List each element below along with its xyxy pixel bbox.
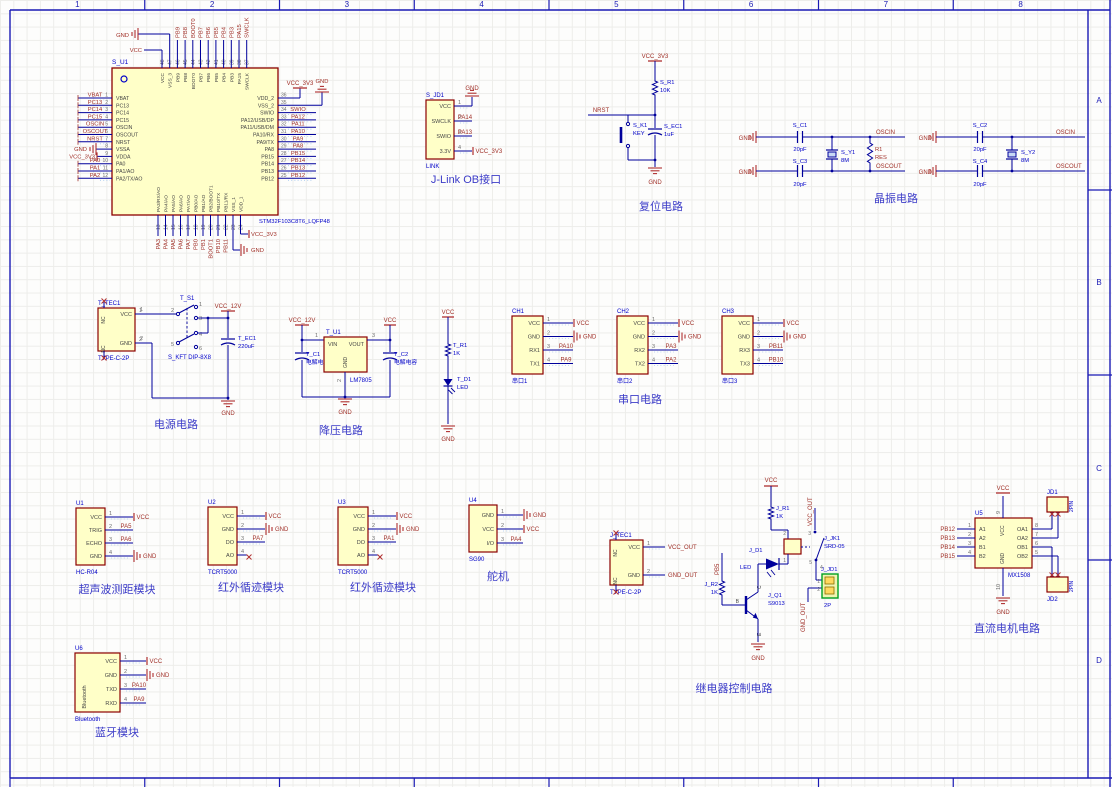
net-label-BOOT0: BOOT0 — [191, 18, 197, 38]
pin-number: 47 — [168, 59, 174, 65]
circuit-power-led[interactable]: VCCT_R11KT_D1LEDGND — [441, 310, 471, 443]
pin-name: PB14 — [261, 162, 274, 168]
pin-name: GND — [628, 573, 640, 579]
pin-name: VCC — [90, 515, 102, 521]
pin-name: GND — [90, 554, 102, 560]
gnd-port: GND — [919, 170, 933, 176]
gnd-port: GND — [583, 335, 597, 341]
part-name: STM32F103C8T6_LQFP48 — [259, 219, 330, 225]
pin-number: 4 — [372, 549, 375, 555]
crystal-symbol — [828, 152, 836, 157]
pin-name: PA10/RX — [253, 133, 274, 139]
gnd-port: GND — [465, 86, 479, 92]
cap-plate — [221, 343, 235, 345]
pin-name: TX3 — [740, 362, 750, 368]
pin-name: TX1 — [530, 362, 540, 368]
pin-name: GND — [343, 357, 349, 369]
pin-name: PB4 — [222, 73, 228, 82]
net-label-PA3: PA3 — [666, 344, 678, 350]
pin-name: TXD — [106, 687, 117, 693]
designator: R1 — [875, 147, 882, 153]
component-CH1[interactable]: CH1串口1VCC1VCCGND2GNDRX13PA10TX14PA9 — [512, 309, 597, 385]
pin-name: VBAT — [116, 96, 130, 102]
pin-name: ECHO — [86, 541, 103, 547]
designator: JD2 — [1047, 597, 1058, 603]
pin-number: 4 — [652, 358, 655, 364]
section-title-servo[interactable]: 舵机 — [487, 569, 509, 583]
pin-number: 1 — [458, 100, 461, 106]
pin-name: AO — [357, 553, 366, 559]
pin-name: PA5/AO — [171, 195, 177, 212]
pin-name: GND — [353, 527, 365, 533]
pin-name: TRIG — [89, 528, 102, 534]
value: 20pF — [793, 147, 807, 153]
net-label-OSCIN: OSCIN — [876, 130, 895, 136]
net-label-PA4: PA4 — [511, 537, 523, 543]
pin-number: 15 — [171, 224, 177, 230]
pin-number: 1 — [968, 523, 971, 529]
pin-number: 3 — [372, 536, 375, 542]
power-port-VCC: VCC — [137, 515, 150, 521]
net-label-PA5: PA5 — [171, 239, 177, 250]
connector-body — [1047, 577, 1068, 592]
pin-name: PA12/USB/DP — [241, 118, 275, 124]
zone-letter-B: B — [1096, 278, 1101, 287]
pin-name: RX3 — [739, 348, 750, 354]
designator: S_C4 — [973, 159, 988, 165]
pin-number: 14 — [164, 224, 170, 230]
gnd-port: GND — [74, 147, 87, 153]
net-label-PC13: PC13 — [88, 100, 103, 106]
pin-number: 2 — [372, 523, 375, 529]
net-label-PB5: PB5 — [214, 27, 220, 38]
designator: T_C1 — [306, 352, 320, 358]
part-name: Bluetooth — [75, 717, 100, 723]
pin-name: RX2 — [634, 348, 645, 354]
net-label-PA1: PA1 — [384, 536, 396, 542]
pin-number: 1 — [817, 579, 820, 585]
pin-name: PB11/RX — [224, 192, 230, 212]
gnd-port: GND — [648, 180, 662, 186]
net-label-PA6: PA6 — [179, 239, 185, 250]
designator: U6 — [75, 646, 83, 652]
pin-number: 22 — [224, 224, 230, 230]
net-label-SWCLK: SWCLK — [245, 17, 251, 38]
pin-number: 2 — [652, 331, 655, 337]
pin-number: 6 — [1035, 541, 1038, 547]
pin-number: 4 — [124, 697, 127, 703]
section-title-reset[interactable]: 复位电路 — [639, 199, 683, 213]
pin-number: 45 — [183, 59, 189, 65]
pin-number: 2 — [241, 523, 244, 529]
pin-number: 3 — [109, 537, 112, 543]
pin-name: PA4/AO — [164, 195, 170, 212]
power-port: VCC_3V3 — [642, 54, 669, 60]
net-label-PB14: PB14 — [291, 158, 306, 164]
pin-name: B1 — [979, 545, 986, 551]
component-U3[interactable]: U3TCRT5000VCC1VCCGND2GNDDO3PA1AO4 — [338, 500, 420, 576]
zone-letter-D: D — [1096, 656, 1102, 665]
section-title-buck[interactable]: 降压电路 — [319, 423, 363, 437]
net-label-BOOT1: BOOT1 — [209, 239, 215, 259]
net-label-PA10: PA10 — [132, 683, 147, 689]
designator: CH3 — [722, 309, 735, 315]
pin-name: VDDA — [116, 154, 131, 160]
pin-number: 5 — [1035, 550, 1038, 556]
net-label-NRST: NRST — [87, 136, 103, 142]
pin-name: PA8 — [265, 147, 275, 153]
value: 1K — [453, 351, 460, 357]
pin-number: 17 — [186, 224, 192, 230]
pin-name: PC13 — [116, 103, 129, 109]
pin-number: 3 — [968, 541, 971, 547]
junction-dot — [344, 396, 347, 399]
circuit-power[interactable]: 12T_S1S_KFT DIP-8X8123456VCC_12VT_EC1220… — [135, 296, 256, 417]
pin-number: 40 — [222, 59, 228, 65]
power-port-VCC: VCC — [577, 321, 590, 327]
pin-name: PB10/TX — [216, 192, 222, 212]
cap-plate — [648, 133, 662, 135]
designator: T_R1 — [453, 343, 467, 349]
value: LED — [740, 565, 751, 571]
net-label-PA1: PA1 — [90, 166, 101, 172]
component-mcu-S_U1[interactable]: S_U1STM32F103C8T6_LQFP48VBAT1VBATPC132PC… — [69, 17, 330, 258]
pin-number: 44 — [191, 59, 197, 65]
net-label-PA12: PA12 — [291, 114, 305, 120]
designator: T_EC1 — [238, 336, 256, 342]
pin-name: GND — [482, 513, 494, 519]
value: 8M — [841, 158, 849, 164]
value: 20pF — [973, 182, 987, 188]
designator: S_Y1 — [841, 150, 855, 156]
pin-number: 43 — [199, 59, 205, 65]
schematic-canvas[interactable]: 12345678ABCDJ-Link OB接口复位电路晶振电路电源电路降压电路串… — [0, 0, 1112, 787]
section-title-relay[interactable]: 继电器控制电路 — [696, 681, 773, 695]
value: LED — [457, 385, 468, 391]
net-label-VCC_OUT: VCC_OUT — [668, 545, 697, 551]
pin-number: 4 — [757, 358, 760, 364]
resistor-symbol — [652, 78, 657, 98]
gnd-port: GND — [688, 335, 702, 341]
pin-name: PB1/AO — [201, 194, 207, 212]
designator: U3 — [338, 500, 346, 506]
wire — [816, 538, 824, 560]
part-name: 2PIN — [1069, 500, 1075, 512]
gnd-port: GND — [406, 527, 420, 533]
pin-number: 10 — [996, 584, 1002, 590]
section-title-ir1[interactable]: 红外循迹模块 — [218, 581, 284, 594]
pin-name: VCC — [633, 321, 645, 327]
pin-number: 13 — [156, 224, 162, 230]
designator: J_Q1 — [768, 593, 782, 599]
component-J_TEC1[interactable]: J_TEC1TYPE-C-2PNCNCVCC1VCC_OUTGND2GND_OU… — [610, 531, 698, 597]
pin-number: 9 — [996, 511, 1002, 514]
net-label-PA0: PA0 — [90, 158, 101, 164]
zone-number-3: 3 — [345, 0, 350, 9]
zone-number-5: 5 — [614, 0, 619, 9]
part-name: MX1508 — [1008, 573, 1031, 579]
power-port: VCC_12V — [289, 318, 316, 324]
pin-number: 39 — [229, 59, 235, 65]
value: 8M — [1021, 158, 1029, 164]
pin-number: 2 — [817, 587, 820, 593]
section-title-ultrasonic[interactable]: 超声波测距模块 — [79, 582, 156, 596]
net-label-GND_OUT: GND_OUT — [801, 602, 807, 632]
pin-name: OSCOUT — [116, 133, 139, 139]
pin-name: VCC — [353, 514, 365, 520]
value: 20pF — [973, 147, 987, 153]
pin-name: PA0 — [116, 162, 126, 168]
designator: J_R1 — [776, 506, 790, 512]
gnd-port: GND — [338, 410, 352, 416]
net-label-PB7: PB7 — [199, 27, 205, 38]
pin-name: VCC — [439, 104, 451, 110]
pin-name: PA3/RX/AO — [156, 187, 162, 212]
pin-name: VCC — [628, 545, 640, 551]
pin-name: C — [757, 585, 763, 589]
pin-number: 20 — [209, 224, 215, 230]
pin-name: RX1 — [529, 348, 540, 354]
section-title-serial[interactable]: 串口电路 — [618, 393, 662, 406]
pin-number: 37 — [245, 59, 251, 65]
pin-number: 6 — [199, 346, 202, 352]
pin-name: 3.3V — [440, 149, 452, 155]
power-port-VCC: VCC — [400, 514, 413, 520]
pin-name: VSSA — [116, 147, 130, 153]
pin-number: 1 — [757, 317, 760, 323]
nc-pin: NC — [613, 549, 619, 557]
wire — [771, 570, 775, 575]
pin-number: 42 — [206, 59, 212, 65]
designator: S_C2 — [973, 123, 988, 129]
designator: T_C2 — [394, 352, 408, 358]
pin-name: OA1 — [1017, 527, 1028, 533]
designator: CH1 — [512, 309, 525, 315]
part-name: 2PIN — [1069, 580, 1075, 592]
pin-name: PB15 — [261, 154, 274, 160]
pin-number: 1 — [372, 510, 375, 516]
pin-name: PB6 — [206, 73, 212, 82]
pin-number: 7 — [1035, 532, 1038, 538]
pin-name: GND — [222, 527, 234, 533]
net-label-PB11: PB11 — [769, 344, 784, 350]
pin-name: VCC — [528, 321, 540, 327]
net-label-OSCIN: OSCIN — [1056, 130, 1075, 136]
power-port: VCC — [130, 48, 142, 54]
gnd-port: GND — [441, 437, 455, 443]
net-label-PA7: PA7 — [253, 536, 265, 542]
value: 1K — [711, 590, 718, 596]
section-title-jlink[interactable]: J-Link OB接口 — [431, 173, 501, 186]
pin-name: VSS_1 — [231, 197, 237, 212]
pin-number: 46 — [175, 59, 181, 65]
section-title-motor[interactable]: 直流电机电路 — [974, 621, 1040, 635]
pin-name: OB1 — [1017, 545, 1028, 551]
pin-number: 2 — [140, 336, 143, 342]
gnd-port: GND — [316, 79, 329, 85]
pin-name: OSCIN — [116, 125, 133, 131]
gnd-port: GND — [116, 33, 129, 39]
switch-contact — [194, 316, 197, 319]
section-title-bt[interactable]: 蓝牙模块 — [95, 726, 139, 739]
designator: J_JK1 — [824, 536, 840, 542]
component-S_JD1[interactable]: S_JD1LINKVCC1GNDSWCLK2PA14SWIO3PA133.3V4… — [426, 86, 503, 170]
designator: U4 — [469, 498, 477, 504]
net-label-PA8: PA8 — [293, 144, 304, 150]
pin-number: 1 — [783, 558, 786, 564]
net-label-VCC_OUT: VCC_OUT — [808, 497, 814, 526]
designator: S_U1 — [112, 59, 129, 66]
pin-name: OB2 — [1017, 554, 1028, 560]
designator: J_D1 — [749, 548, 763, 554]
pin-number: 3 — [501, 537, 504, 543]
pin-number: 1 — [652, 317, 655, 323]
value: KEY — [633, 131, 645, 137]
component-U5[interactable]: U5MX1508VCCGNDA11PB12A22PB13B13PB14B24PB… — [940, 486, 1075, 616]
value: 电解电容 — [394, 358, 417, 366]
power-port-VCC: VCC — [269, 514, 282, 520]
component-U1[interactable]: U1HC-R04VCC1VCCTRIG2PA5ECHO3PA6GND4GND — [76, 501, 157, 576]
pin-name: GND — [528, 335, 540, 341]
pin-number: 2 — [757, 331, 760, 337]
circuit-reset[interactable]: VCC_3V3S_R110KNRSTS_K1KEYS_EC11uFGND — [588, 54, 682, 186]
component-CH2[interactable]: CH2串口2VCC1VCCGND2GNDRX23PA3TX24PA2 — [617, 309, 702, 385]
pin-number: 1 — [124, 655, 127, 661]
net-label-GND_OUT: GND_OUT — [668, 573, 698, 579]
section-title-power[interactable]: 电源电路 — [154, 417, 198, 431]
pin-number: 2 — [171, 308, 174, 314]
component-CH3[interactable]: CH3串口3VCC1VCCGND2GNDRX33PB11TX34PB10 — [722, 309, 807, 385]
pin-number: 2 — [647, 569, 650, 575]
switch-contact — [626, 144, 629, 147]
gnd-port: GND — [739, 170, 753, 176]
pin-name: PC14 — [116, 111, 129, 117]
net-label-PA5: PA5 — [121, 524, 133, 530]
net-label-PB11: PB11 — [224, 239, 230, 253]
pin-name: SWIO — [436, 134, 451, 140]
net-label-PB15: PB15 — [291, 151, 305, 157]
pin-name: B — [736, 599, 740, 605]
component-U4[interactable]: U4SG90GND1GNDVCC2VCCI/O3PA4 — [469, 498, 547, 563]
pin-number: 5 — [809, 560, 812, 566]
part-name: LM7805 — [350, 378, 372, 384]
value: 20pF — [793, 182, 807, 188]
pin-number: 3 — [372, 333, 375, 339]
pin-number: 1 — [315, 333, 318, 339]
pin-name: VCC — [105, 659, 117, 665]
wire — [449, 390, 453, 394]
pin-name: VCC — [120, 312, 132, 318]
part-name: TCRT5000 — [338, 570, 368, 576]
pin-number: 4 — [547, 358, 550, 364]
designator: J_JD1 — [821, 567, 837, 573]
pin-name: PA15 — [237, 73, 243, 85]
power-port-VCC: VCC — [150, 659, 163, 665]
pin-number: 19 — [201, 224, 207, 230]
pin-number: 3 — [547, 344, 550, 350]
pin-name: VCC — [738, 321, 750, 327]
component-U2[interactable]: U2TCRT5000VCC1VCCGND2GNDDO3PA7AO4 — [208, 500, 289, 576]
pin-name: PB5 — [214, 73, 220, 82]
pin-number: 8 — [1035, 523, 1038, 529]
gnd-port: GND — [275, 527, 289, 533]
component-U6[interactable]: U6BluetoothBluetoothVCC1VCCGND2GNDTXD3PA… — [75, 646, 170, 723]
connector-body — [1047, 497, 1068, 512]
power-port-VCC: VCC — [787, 321, 800, 327]
part-name: TCRT5000 — [208, 570, 238, 576]
part-name: 2P — [824, 603, 831, 609]
pin-number: 23 — [231, 224, 237, 230]
pin-name: SWCLK — [431, 119, 451, 125]
pin-name: SWCLK — [245, 72, 251, 90]
net-label-PB5: PB5 — [715, 563, 721, 575]
gnd-port: GND — [793, 335, 807, 341]
net-label-PA4: PA4 — [164, 238, 170, 249]
designator: S_R1 — [660, 80, 675, 86]
pin-name: PA1/AO — [116, 169, 134, 175]
designator: U5 — [975, 511, 983, 517]
circuit-buck[interactable]: VCC_12VT_C1电解电容T_U1VINVOUTGND132LM7805GN… — [289, 318, 418, 416]
designator: S_K1 — [633, 123, 647, 129]
component-T_TEC1[interactable]: T_TEC1TYPE-C-2PNCNCVCC1GND2 — [98, 299, 142, 363]
designator: JD1 — [1047, 490, 1058, 496]
zone-number-8: 8 — [1018, 0, 1023, 9]
net-label-NRST: NRST — [593, 108, 610, 114]
net-label-PA11: PA11 — [291, 122, 304, 128]
side-text: Bluetooth — [82, 685, 88, 708]
power-port: VCC_12V — [215, 304, 242, 310]
pin-number: 1 — [109, 511, 112, 517]
designator: T_S1 — [180, 296, 195, 302]
net-label-PA15: PA15 — [237, 24, 243, 38]
designator: S_Y2 — [1021, 150, 1035, 156]
pin-name: VSS_2 — [258, 103, 274, 109]
schematic-sheet: 12345678ABCDJ-Link OB接口复位电路晶振电路电源电路降压电路串… — [0, 0, 1112, 787]
pin-number: 1 — [241, 510, 244, 516]
circuit-crystal[interactable]: GNDS_C120pFOSCINGNDS_C320pFOSCOUTS_Y18MR… — [739, 123, 1085, 188]
section-title-ir2[interactable]: 红外循迹模块 — [350, 581, 416, 594]
power-port-VCC_3V3: VCC_3V3 — [476, 149, 503, 155]
pin-name: GND — [120, 341, 132, 347]
pin-name: PB13 — [261, 169, 274, 175]
designator: J_R2 — [704, 582, 718, 588]
pin-number: 1 — [140, 307, 143, 313]
section-title-crystal[interactable]: 晶振电路 — [874, 191, 918, 205]
zone-number-4: 4 — [479, 0, 484, 9]
circuit-relay[interactable]: VCCJ_R11K2J_JK1SRD-051J_D1LEDCEGNDBJ_Q1S… — [704, 478, 844, 662]
pin-name: VCC — [1000, 525, 1006, 536]
pin-name: B2 — [979, 554, 986, 560]
pin-name: PA9/TX — [257, 140, 275, 146]
part-name: 串口3 — [722, 377, 738, 385]
pin-name: VIN — [328, 342, 337, 348]
pin-number: 2 — [337, 379, 343, 382]
pin-name: A1 — [979, 527, 986, 533]
pin-number: 48 — [160, 59, 166, 65]
net-label-PA9: PA9 — [561, 358, 573, 364]
pin-name: VDD_1 — [239, 196, 245, 212]
net-label-PC14: PC14 — [88, 107, 103, 113]
junction-dot — [814, 531, 817, 534]
net-label-OSCIN: OSCIN — [86, 122, 104, 128]
net-label-PA6: PA6 — [121, 537, 133, 543]
nc-pin: NC — [613, 577, 619, 585]
switch-contact — [194, 345, 197, 348]
net-label-PA10: PA10 — [559, 344, 574, 350]
designator: T_U1 — [326, 330, 341, 336]
pin-name: PA2/TX/AO — [116, 176, 142, 182]
pin-number: 38 — [237, 59, 243, 65]
